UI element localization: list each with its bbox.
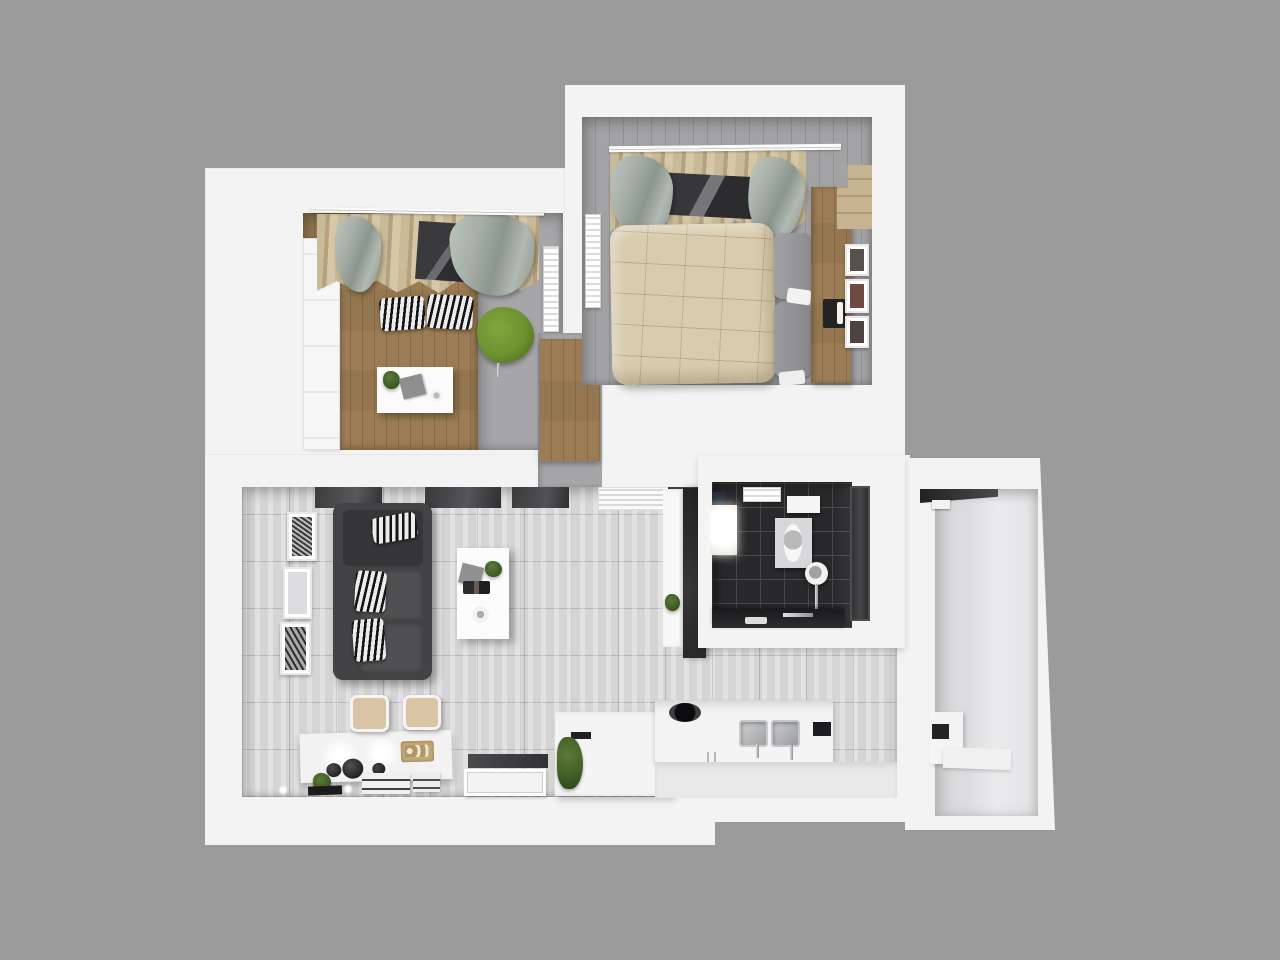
living-frame-3-art xyxy=(285,627,306,670)
dining-floor-mat-2 xyxy=(413,773,440,792)
kitchen-faucet-1 xyxy=(756,744,759,758)
kitchen-counter xyxy=(655,700,833,762)
coffee-table-plate xyxy=(472,606,489,623)
dining-floor-mat-1 xyxy=(362,773,410,794)
bedroom-frame-2-art xyxy=(850,284,864,308)
bathroom-soap-dish xyxy=(745,617,767,624)
office-desk-cup xyxy=(430,389,443,402)
living-frame-1 xyxy=(287,512,317,561)
office-radiator xyxy=(543,246,559,332)
bathroom-door xyxy=(850,486,870,621)
dining-chair-2 xyxy=(403,695,441,730)
office-room xyxy=(205,168,565,455)
balcony xyxy=(905,458,1055,830)
balcony-slab xyxy=(943,747,1012,770)
office-zebra-cushion-2 xyxy=(426,294,474,330)
kitchen-dark-item xyxy=(813,722,831,736)
living-shelf-plant xyxy=(665,594,680,611)
bedroom-candles xyxy=(837,302,843,324)
console-bowl-2 xyxy=(342,758,364,779)
dining-black-tray xyxy=(308,785,342,795)
kitchen-floor-strip xyxy=(655,762,897,798)
living-frame-3 xyxy=(280,622,311,675)
sofa-zebra-pillow-2 xyxy=(354,570,387,613)
entry-dark-mat xyxy=(468,754,548,768)
bathroom xyxy=(698,456,905,648)
living-sofa xyxy=(333,503,432,680)
office-chair-leg xyxy=(497,363,500,377)
living-frame-2-art xyxy=(288,572,307,614)
bathroom-vanity-counter xyxy=(713,609,844,628)
kitchen-faucet-2 xyxy=(790,745,793,760)
living-area xyxy=(205,455,910,845)
kitchen-unit-lid xyxy=(600,716,662,743)
floor-light-dot-1 xyxy=(278,785,288,795)
bedroom-frame-3-art xyxy=(850,321,864,343)
bathroom-faucet-stem xyxy=(815,584,818,610)
living-frame-2 xyxy=(283,567,312,619)
bedroom-radiator xyxy=(585,214,601,308)
entry-white-tray xyxy=(464,769,546,796)
living-shelf xyxy=(663,489,683,647)
office-desk-plant xyxy=(383,371,400,389)
balcony-appliance-front xyxy=(932,724,949,739)
kitchen-hob-pot xyxy=(669,703,701,722)
living-window-3 xyxy=(512,487,569,508)
bedroom-frame-1 xyxy=(845,244,869,276)
floor-light-dot-2 xyxy=(343,784,353,794)
living-vent-panel xyxy=(598,487,669,510)
bedroom-frame-1-art xyxy=(850,249,864,271)
kitchen-handle-1 xyxy=(707,752,716,762)
kitchen-sink-1 xyxy=(739,720,768,747)
kitchen-plant xyxy=(557,737,583,789)
bedroom-frame-2 xyxy=(845,279,869,313)
bedroom-pillow-2 xyxy=(774,303,811,377)
bathroom-vessel-sink xyxy=(805,562,828,585)
bathroom-towel-radiator xyxy=(743,487,781,502)
bathroom-toilet xyxy=(775,518,812,568)
coffee-table-magazines xyxy=(463,581,490,594)
bedroom xyxy=(565,85,905,455)
bathroom-wall-shelf xyxy=(787,496,820,513)
bathroom-toilet-seat xyxy=(784,524,802,562)
bedroom-pillow-accent-2 xyxy=(778,370,805,387)
bathroom-shower-panel xyxy=(710,505,737,555)
living-window-2 xyxy=(425,487,501,508)
floorplan-render xyxy=(0,0,1280,960)
bedroom-pillow-accent-1 xyxy=(786,287,812,305)
bedroom-bed-duvet xyxy=(610,223,777,386)
dining-chair-1 xyxy=(350,695,389,732)
kitchen-sink-2 xyxy=(771,720,800,747)
living-frame-1-art xyxy=(292,517,312,556)
bathroom-dark-box xyxy=(713,492,726,504)
bedroom-candle-tray xyxy=(823,299,846,328)
coffee-table-plant xyxy=(485,561,502,577)
sofa-zebra-pillow-3 xyxy=(352,618,387,662)
bedroom-frame-3 xyxy=(845,316,869,348)
gold-tray-jars xyxy=(405,745,429,758)
console-gold-tray xyxy=(401,740,435,762)
balcony-light-fixture xyxy=(932,500,950,509)
office-zebra-cushion-1 xyxy=(379,295,426,331)
living-coffee-table xyxy=(457,548,509,639)
bathroom-vanity-faucet xyxy=(783,613,813,617)
